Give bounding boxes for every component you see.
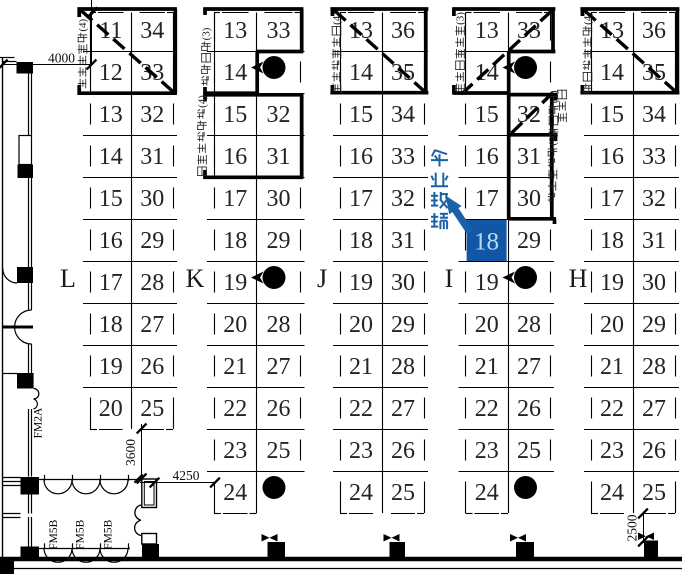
svg-text:24: 24 — [600, 480, 624, 506]
svg-text:20: 20 — [600, 312, 624, 338]
svg-text:26: 26 — [642, 438, 666, 464]
svg-text:2500: 2500 — [625, 514, 640, 541]
svg-text:29: 29 — [140, 228, 164, 254]
svg-text:13: 13 — [600, 18, 624, 44]
svg-text:31: 31 — [140, 144, 164, 170]
svg-text:20: 20 — [99, 396, 123, 422]
svg-text:22: 22 — [600, 396, 624, 422]
svg-text:27: 27 — [391, 396, 415, 422]
svg-text:27: 27 — [517, 354, 541, 380]
svg-text:19: 19 — [99, 354, 123, 380]
svg-text:19: 19 — [349, 270, 373, 296]
svg-text:16: 16 — [223, 144, 247, 170]
svg-text:13: 13 — [99, 102, 123, 128]
svg-text:17: 17 — [600, 186, 624, 212]
svg-text:FM5B: FM5B — [75, 519, 87, 549]
svg-text:20: 20 — [475, 312, 499, 338]
svg-text:23: 23 — [223, 438, 247, 464]
svg-text:22: 22 — [475, 396, 499, 422]
svg-text:18: 18 — [600, 228, 624, 254]
svg-text:16: 16 — [99, 228, 123, 254]
svg-text:25: 25 — [391, 480, 415, 506]
svg-text:(3): (3) — [455, 12, 467, 25]
svg-text:26: 26 — [267, 396, 291, 422]
svg-text:4250: 4250 — [173, 468, 200, 483]
svg-text:31: 31 — [267, 144, 291, 170]
svg-text:25: 25 — [267, 438, 291, 464]
svg-text:30: 30 — [391, 270, 415, 296]
svg-text:28: 28 — [267, 312, 291, 338]
svg-text:26: 26 — [140, 354, 164, 380]
svg-text:14: 14 — [349, 60, 373, 86]
svg-text:31: 31 — [642, 228, 666, 254]
svg-text:19: 19 — [223, 270, 247, 296]
svg-text:32: 32 — [642, 186, 666, 212]
svg-text:FM5B: FM5B — [103, 519, 115, 549]
svg-text:33: 33 — [642, 144, 666, 170]
svg-text:15: 15 — [600, 102, 624, 128]
svg-text:32: 32 — [391, 186, 415, 212]
svg-text:4000: 4000 — [48, 51, 75, 66]
svg-text:25: 25 — [517, 438, 541, 464]
svg-text:21: 21 — [600, 354, 624, 380]
svg-text:12: 12 — [99, 60, 123, 86]
svg-text:17: 17 — [475, 186, 499, 212]
svg-text:J: J — [317, 264, 327, 293]
svg-text:29: 29 — [642, 312, 666, 338]
svg-text:L: L — [60, 264, 76, 293]
svg-text:23: 23 — [600, 438, 624, 464]
svg-text:13: 13 — [475, 18, 499, 44]
svg-text:28: 28 — [391, 354, 415, 380]
svg-text:FM2A: FM2A — [33, 407, 45, 438]
svg-text:30: 30 — [267, 186, 291, 212]
svg-text:34: 34 — [642, 102, 666, 128]
svg-text:28: 28 — [517, 312, 541, 338]
svg-text:26: 26 — [391, 438, 415, 464]
svg-text:25: 25 — [642, 480, 666, 506]
svg-text:24: 24 — [475, 480, 499, 506]
svg-text:21: 21 — [349, 354, 373, 380]
svg-text:22: 22 — [349, 396, 373, 422]
svg-text:29: 29 — [517, 228, 541, 254]
svg-text:FM5B: FM5B — [48, 519, 60, 549]
svg-text:36: 36 — [391, 18, 415, 44]
svg-text:28: 28 — [140, 270, 164, 296]
svg-text:32: 32 — [267, 102, 291, 128]
svg-text:29: 29 — [391, 312, 415, 338]
svg-text:21: 21 — [475, 354, 499, 380]
svg-text:26: 26 — [517, 396, 541, 422]
svg-text:27: 27 — [140, 312, 164, 338]
svg-text:14: 14 — [99, 144, 123, 170]
svg-text:18: 18 — [99, 312, 123, 338]
svg-text:15: 15 — [99, 186, 123, 212]
svg-text:22: 22 — [223, 396, 247, 422]
svg-text:27: 27 — [642, 396, 666, 422]
svg-text:(4): (4) — [582, 12, 594, 25]
svg-text:25: 25 — [140, 396, 164, 422]
svg-text:3600: 3600 — [123, 439, 138, 466]
svg-text:K: K — [186, 264, 205, 293]
svg-text:15: 15 — [349, 102, 373, 128]
svg-text:15: 15 — [475, 102, 499, 128]
svg-text:23: 23 — [349, 438, 373, 464]
svg-text:(4): (4) — [197, 95, 209, 108]
svg-text:16: 16 — [349, 144, 373, 170]
svg-text:16: 16 — [600, 144, 624, 170]
svg-text:31: 31 — [517, 144, 541, 170]
svg-text:15: 15 — [223, 102, 247, 128]
svg-text:33: 33 — [391, 144, 415, 170]
svg-text:14: 14 — [223, 60, 247, 86]
svg-text:(2): (2) — [547, 132, 559, 145]
svg-text:24: 24 — [349, 480, 373, 506]
svg-text:21: 21 — [223, 354, 247, 380]
svg-text:14: 14 — [600, 60, 624, 86]
svg-text:(1): (1) — [548, 90, 560, 103]
svg-text:17: 17 — [349, 186, 373, 212]
svg-text:34: 34 — [140, 18, 164, 44]
svg-text:30: 30 — [517, 186, 541, 212]
svg-text:34: 34 — [391, 102, 415, 128]
svg-text:(4): (4) — [331, 12, 343, 25]
svg-text:29: 29 — [267, 228, 291, 254]
svg-text:20: 20 — [349, 312, 373, 338]
svg-text:31: 31 — [391, 228, 415, 254]
svg-text:18: 18 — [474, 229, 499, 256]
svg-text:27: 27 — [267, 354, 291, 380]
svg-text:(4): (4) — [77, 18, 89, 31]
svg-text:30: 30 — [642, 270, 666, 296]
svg-text:18: 18 — [349, 228, 373, 254]
svg-text:19: 19 — [475, 270, 499, 296]
svg-text:24: 24 — [223, 480, 247, 506]
svg-text:16: 16 — [475, 144, 499, 170]
svg-text:23: 23 — [475, 438, 499, 464]
svg-text:18: 18 — [223, 228, 247, 254]
svg-text:33: 33 — [267, 18, 291, 44]
svg-text:32: 32 — [140, 102, 164, 128]
svg-text:17: 17 — [99, 270, 123, 296]
svg-text:28: 28 — [642, 354, 666, 380]
svg-text:(3): (3) — [201, 27, 213, 40]
svg-text:20: 20 — [223, 312, 247, 338]
svg-text:19: 19 — [600, 270, 624, 296]
svg-text:30: 30 — [140, 186, 164, 212]
svg-text:13: 13 — [223, 18, 247, 44]
svg-text:17: 17 — [223, 186, 247, 212]
svg-text:H: H — [569, 264, 588, 293]
svg-text:36: 36 — [642, 18, 666, 44]
svg-text:I: I — [445, 264, 454, 293]
